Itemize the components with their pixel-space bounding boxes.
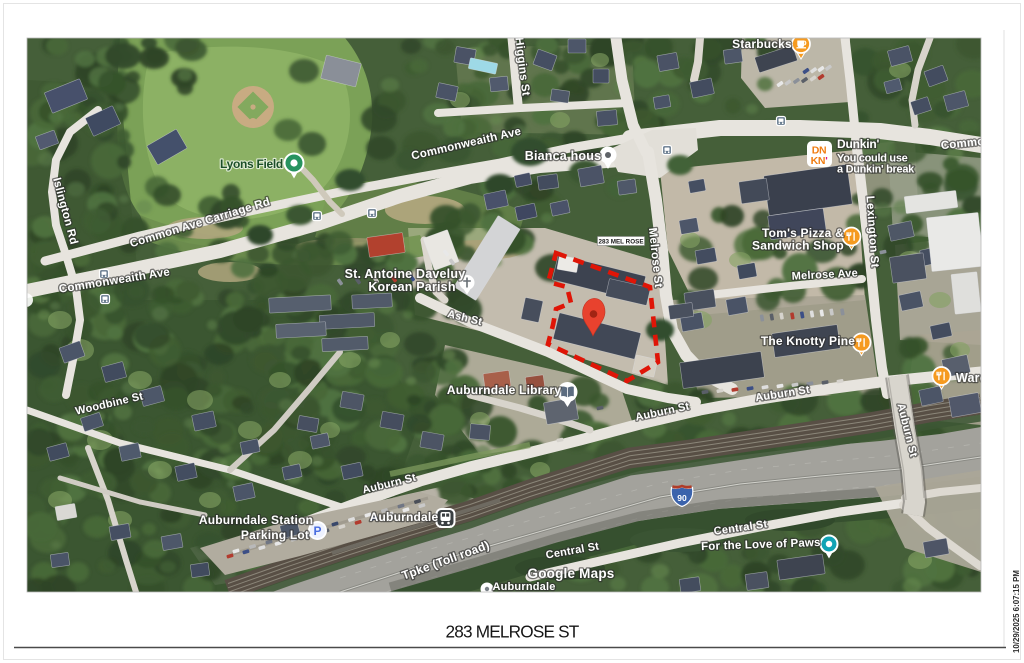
svg-text:10/29/2025 6:07:15 PM: 10/29/2025 6:07:15 PM	[1012, 570, 1021, 653]
svg-text:Auburndale Station: Auburndale Station	[199, 513, 313, 527]
svg-text:The Knotty Pine: The Knotty Pine	[761, 334, 855, 348]
svg-text:Google Maps: Google Maps	[528, 566, 615, 581]
svg-text:Dunkin': Dunkin'	[837, 137, 879, 151]
svg-text:90: 90	[677, 493, 687, 503]
svg-text:P: P	[313, 524, 321, 538]
svg-text:KN': KN'	[811, 155, 828, 167]
svg-text:Korean Parish: Korean Parish	[368, 280, 455, 294]
svg-text:Auburndale Library: Auburndale Library	[447, 383, 561, 397]
svg-text:283 MEL ROSE: 283 MEL ROSE	[598, 239, 643, 246]
svg-text:Bianca hous: Bianca hous	[525, 149, 602, 163]
svg-text:Sandwich Shop: Sandwich Shop	[752, 239, 844, 253]
svg-text:Auburndale: Auburndale	[492, 581, 555, 593]
svg-text:a Dunkin' break: a Dunkin' break	[837, 164, 915, 176]
svg-text:283 MELROSE ST: 283 MELROSE ST	[445, 622, 579, 642]
svg-text:Starbucks: Starbucks	[732, 37, 792, 51]
svg-text:Lyons Field: Lyons Field	[220, 157, 283, 171]
svg-text:Auburndale: Auburndale	[370, 510, 439, 524]
svg-text:St. Antoine Daveluy: St. Antoine Daveluy	[345, 267, 466, 281]
svg-text:Parking Lot: Parking Lot	[241, 528, 309, 542]
